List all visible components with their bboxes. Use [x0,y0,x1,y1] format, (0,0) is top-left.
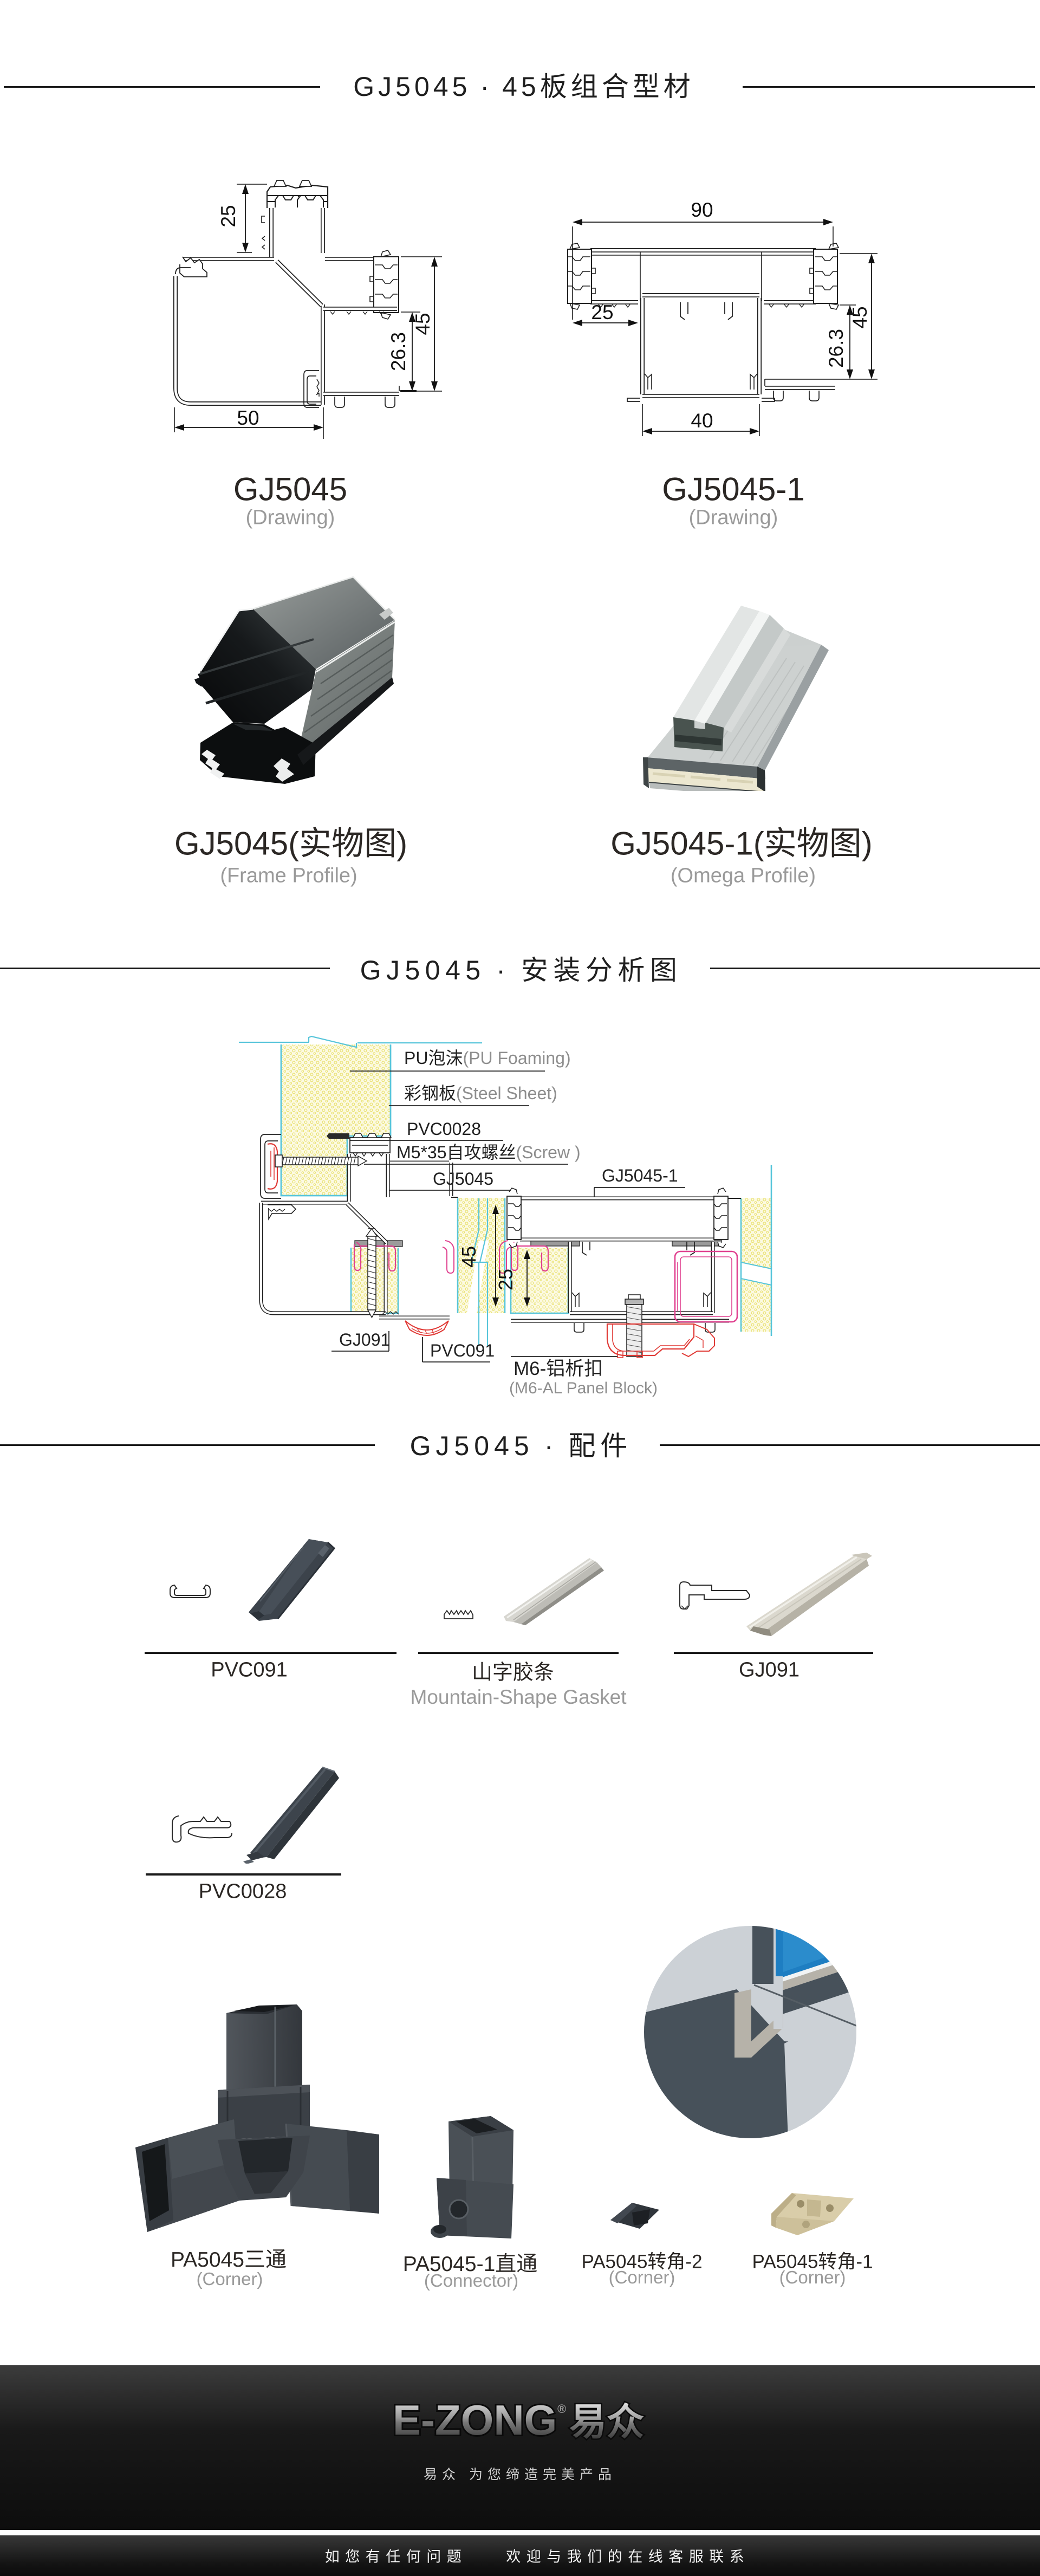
svg-text:GJ5045: GJ5045 [433,1169,493,1189]
svg-text:45: 45 [849,306,871,328]
svg-text:E-ZONG: E-ZONG [393,2396,557,2444]
svg-text:26.3: 26.3 [387,332,409,371]
svg-text:彩钢板(Steel Sheet): 彩钢板(Steel Sheet) [404,1083,557,1103]
svg-text:26.3: 26.3 [825,329,847,368]
svg-text:GJ5045-1: GJ5045-1 [602,1166,678,1185]
svg-text:45: 45 [412,313,434,335]
svg-text:M5*35自攻螺丝(Screw ): M5*35自攻螺丝(Screw ) [396,1143,581,1162]
svg-text:90: 90 [691,200,713,221]
svg-text:PVC0028: PVC0028 [407,1119,481,1139]
svg-text:50: 50 [237,407,259,429]
svg-text:M6-铝析扣: M6-铝析扣 [513,1358,603,1379]
svg-text:40: 40 [691,410,713,432]
svg-text:45: 45 [458,1246,480,1268]
svg-text:GJ091: GJ091 [339,1330,390,1349]
svg-text:易众: 易众 [569,2401,644,2443]
svg-text:PU泡沫(PU Foaming): PU泡沫(PU Foaming) [404,1048,571,1068]
svg-text:25: 25 [217,205,239,227]
svg-text:(M6-AL Panel Block): (M6-AL Panel Block) [509,1379,658,1397]
svg-text:®: ® [557,2402,566,2416]
svg-text:25: 25 [495,1269,517,1290]
svg-text:PVC091: PVC091 [430,1341,495,1360]
svg-text:25: 25 [591,301,613,323]
